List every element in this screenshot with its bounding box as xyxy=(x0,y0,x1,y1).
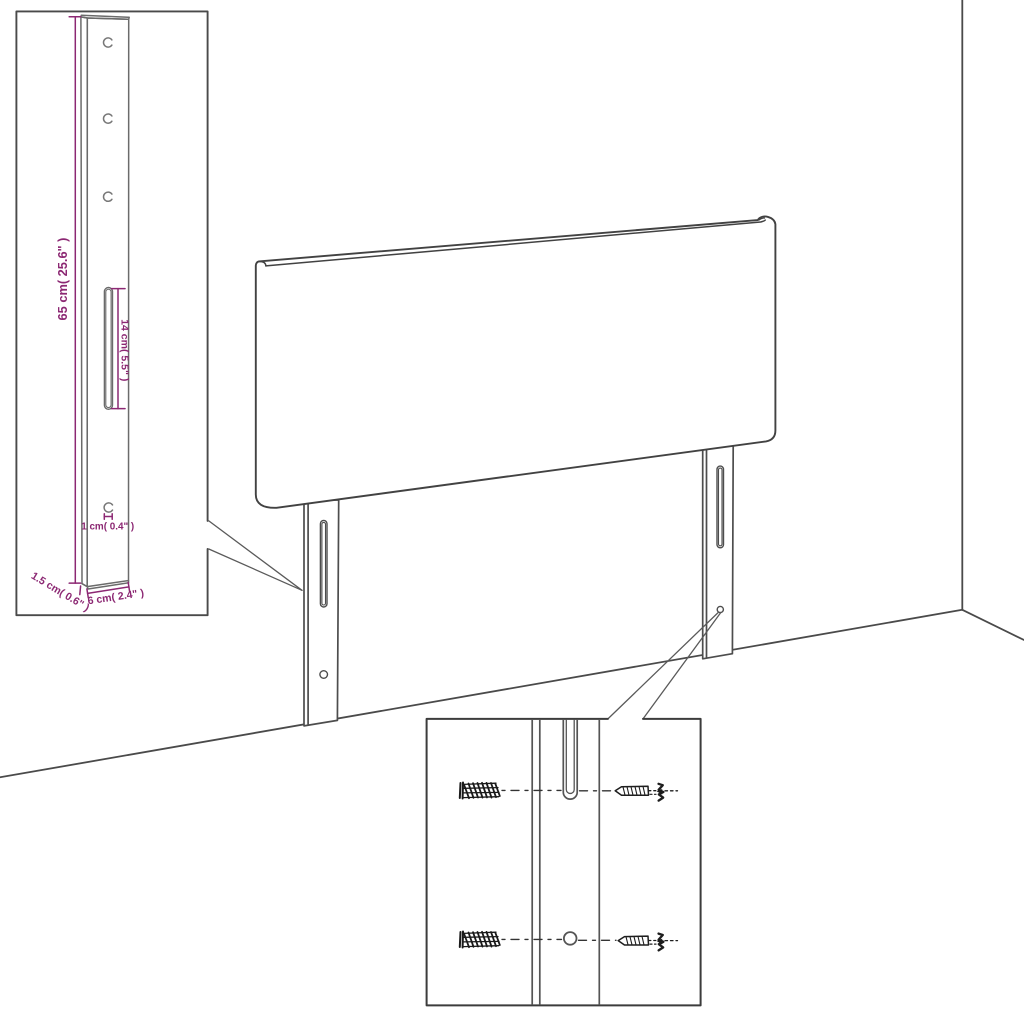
svg-text:14 cm( 5.5" ): 14 cm( 5.5" ) xyxy=(118,319,130,381)
svg-text:65 cm( 25.6" ): 65 cm( 25.6" ) xyxy=(55,238,70,321)
svg-text:1 cm( 0.4" ): 1 cm( 0.4" ) xyxy=(81,521,134,532)
